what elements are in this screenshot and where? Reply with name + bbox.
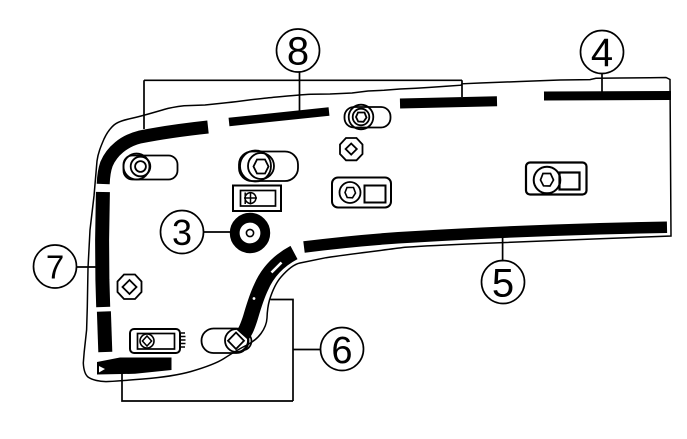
svg-text:4: 4 xyxy=(591,31,613,75)
svg-text:6: 6 xyxy=(331,330,352,372)
svg-text:5: 5 xyxy=(492,262,514,306)
svg-text:7: 7 xyxy=(46,249,64,286)
svg-text:3: 3 xyxy=(172,212,192,253)
svg-text:8: 8 xyxy=(287,30,309,74)
